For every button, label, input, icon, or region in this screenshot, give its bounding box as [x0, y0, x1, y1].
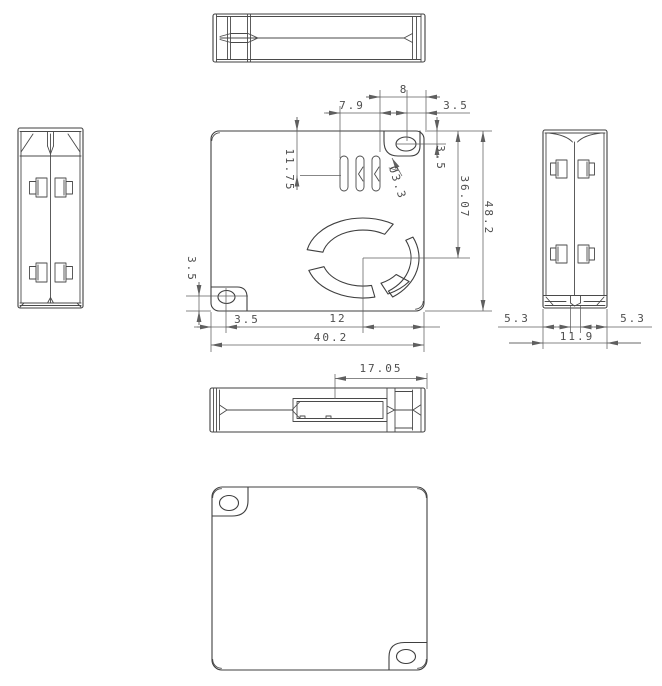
dim-right-wall: 5.3 [620, 312, 646, 325]
left-view-connectors [30, 178, 73, 282]
back-view-outline [212, 487, 427, 670]
vent-slot [356, 156, 364, 191]
back-view [212, 487, 427, 670]
right-view-connectors [551, 160, 595, 263]
vent-slot [372, 156, 380, 191]
dim-fan-center-to-right: 12 [329, 312, 346, 325]
top-view [213, 14, 425, 62]
mounting-lobe-top-right [384, 131, 420, 156]
dim-hole-offset-left: 7.9 [339, 99, 365, 112]
bottom-view-dimensions: 17.05 [335, 362, 427, 399]
dim-hole2-to-bottom: 3.5 [185, 256, 198, 282]
right-view-outline [543, 130, 607, 308]
bottom-view: 17.05 [210, 362, 427, 432]
cad-drawing-sheet: 8 7.9 3.5 3.5 11.75 36.07 48.2 3.5 3.5 1… [0, 0, 662, 686]
front-view: 8 7.9 3.5 3.5 11.75 36.07 48.2 3.5 3.5 1… [185, 83, 495, 352]
dim-body-height: 48.2 [482, 201, 495, 236]
mounting-hole [218, 291, 235, 304]
dim-body-depth: 11.9 [560, 330, 595, 343]
right-view-dimensions: 5.3 5.3 11.9 [498, 306, 652, 349]
dim-left-wall: 5.3 [504, 312, 530, 325]
dim-hole2-to-left: 3.5 [234, 313, 260, 326]
left-side-view [18, 128, 83, 308]
right-side-view: 5.3 5.3 11.9 [498, 130, 652, 349]
dim-fan-center-from-top: 36.07 [458, 175, 471, 218]
dim-slot-depth: 11.75 [283, 148, 296, 191]
dim-hole-diameter: Ø3.3 [386, 164, 409, 201]
mounting-hole [397, 650, 416, 664]
mounting-lobe-bottom-left [211, 287, 247, 311]
top-taper-detail [404, 34, 413, 43]
dim-body-width: 40.2 [314, 331, 349, 344]
dim-hole-to-top-edge: 3.5 [434, 145, 447, 171]
mounting-hole [220, 496, 239, 511]
mounting-lobe-back-top-left [212, 487, 248, 516]
connector-opening [293, 399, 387, 422]
front-dimensions: 8 7.9 3.5 3.5 11.75 36.07 48.2 3.5 3.5 1… [185, 83, 495, 352]
vent-slots [340, 156, 380, 191]
drawing-canvas: 8 7.9 3.5 3.5 11.75 36.07 48.2 3.5 3.5 1… [0, 0, 662, 686]
mounting-lobe-back-bottom-right [389, 643, 427, 671]
dim-hole-to-right-edge: 3.5 [443, 99, 469, 112]
dim-connector-to-edge: 17.05 [359, 362, 402, 375]
vent-slot [340, 156, 348, 191]
dim-tab-width: 8 [400, 83, 409, 96]
